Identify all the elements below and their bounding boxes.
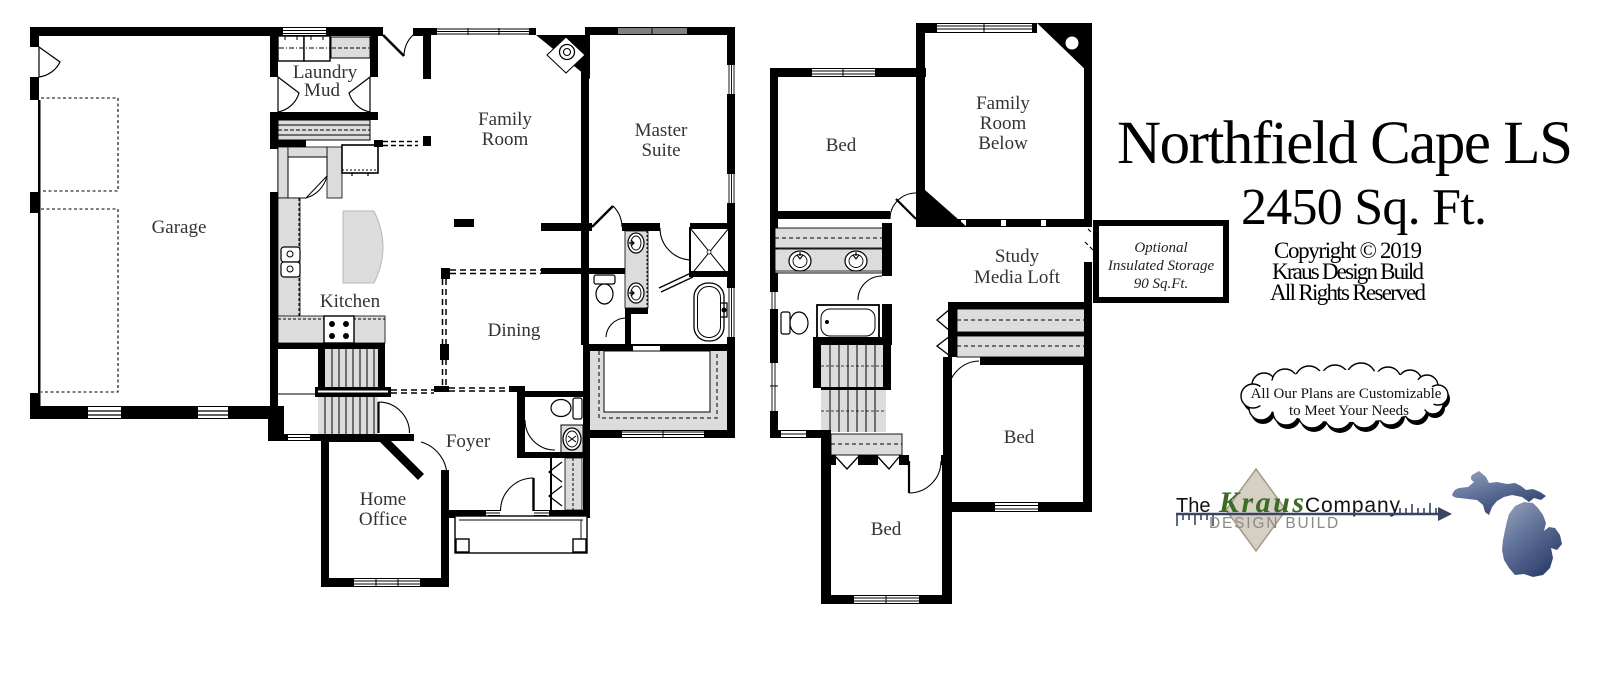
svg-text:Foyer: Foyer <box>446 431 491 452</box>
svg-text:Office: Office <box>359 509 407 530</box>
svg-text:All Rights Reserved: All Rights Reserved <box>1270 280 1427 305</box>
svg-text:Home: Home <box>360 489 406 510</box>
svg-text:Below: Below <box>978 133 1028 154</box>
svg-text:Room: Room <box>980 113 1027 134</box>
svg-text:90 Sq.Ft.: 90 Sq.Ft. <box>1134 276 1189 292</box>
svg-text:Insulated Storage: Insulated Storage <box>1107 258 1215 274</box>
svg-text:Bed: Bed <box>1004 427 1035 448</box>
svg-text:Family: Family <box>478 109 532 130</box>
svg-text:Media Loft: Media Loft <box>974 267 1061 288</box>
svg-text:Mud: Mud <box>304 80 340 101</box>
svg-text:Dining: Dining <box>488 320 541 341</box>
svg-text:Kitchen: Kitchen <box>320 291 381 312</box>
svg-text:Family: Family <box>976 93 1030 114</box>
svg-text:Bed: Bed <box>826 135 857 156</box>
svg-text:Bed: Bed <box>871 519 902 540</box>
svg-text:Room: Room <box>482 129 529 150</box>
svg-text:Suite: Suite <box>641 140 680 161</box>
svg-text:DESIGN BUILD: DESIGN BUILD <box>1209 515 1340 532</box>
svg-text:Garage: Garage <box>152 217 207 238</box>
svg-text:Study: Study <box>995 246 1040 267</box>
svg-text:2450 Sq. Ft.: 2450 Sq. Ft. <box>1241 179 1487 236</box>
svg-text:Optional: Optional <box>1134 240 1187 256</box>
svg-text:to Meet Your Needs: to Meet Your Needs <box>1289 403 1409 419</box>
svg-text:All Our Plans are Customizable: All Our Plans are Customizable <box>1251 386 1442 402</box>
svg-text:Northfield Cape LS: Northfield Cape LS <box>1117 110 1573 177</box>
svg-text:Master: Master <box>635 120 688 141</box>
